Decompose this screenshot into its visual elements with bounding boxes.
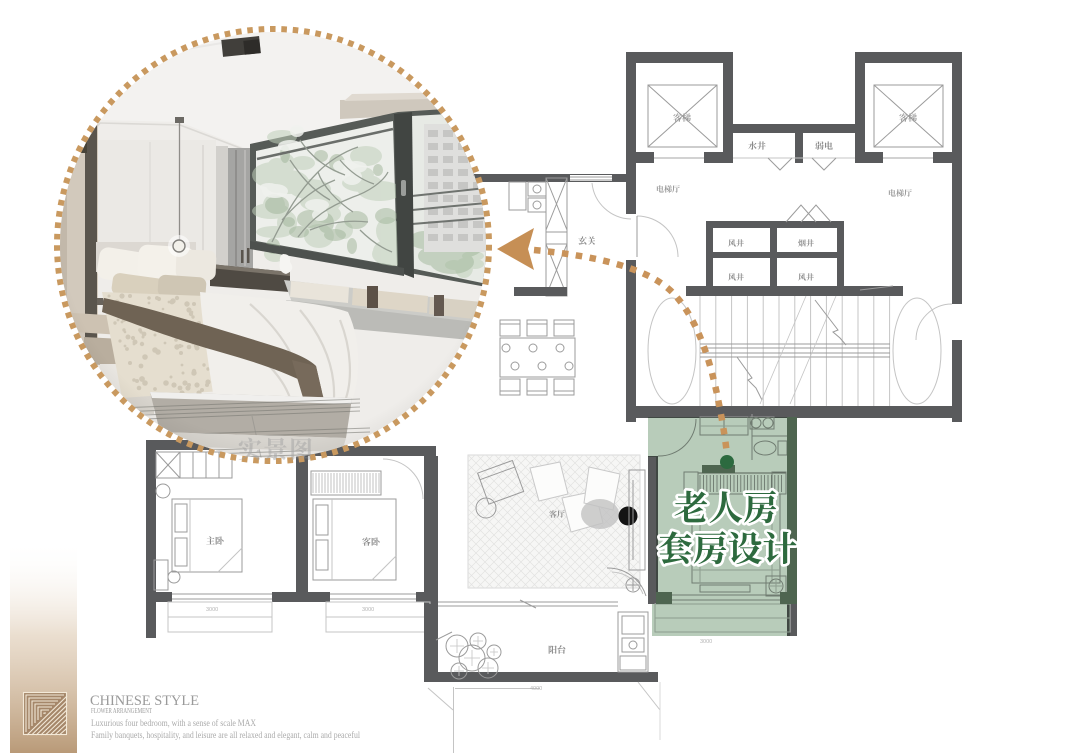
svg-text:FLOWER ARRANGEMENT: FLOWER ARRANGEMENT bbox=[91, 708, 153, 715]
svg-text:Luxurious four bedroom, with a: Luxurious four bedroom, with a sense of … bbox=[91, 718, 256, 728]
svg-text:3000: 3000 bbox=[206, 607, 218, 613]
svg-text:3000: 3000 bbox=[362, 607, 374, 613]
svg-text:Family banquets, hospitality,: Family banquets, hospitality, and leisur… bbox=[91, 730, 360, 740]
svg-text:4000: 4000 bbox=[530, 686, 542, 692]
svg-text:CHINESE STYLE: CHINESE STYLE bbox=[90, 693, 199, 709]
svg-text:3000: 3000 bbox=[700, 639, 712, 645]
